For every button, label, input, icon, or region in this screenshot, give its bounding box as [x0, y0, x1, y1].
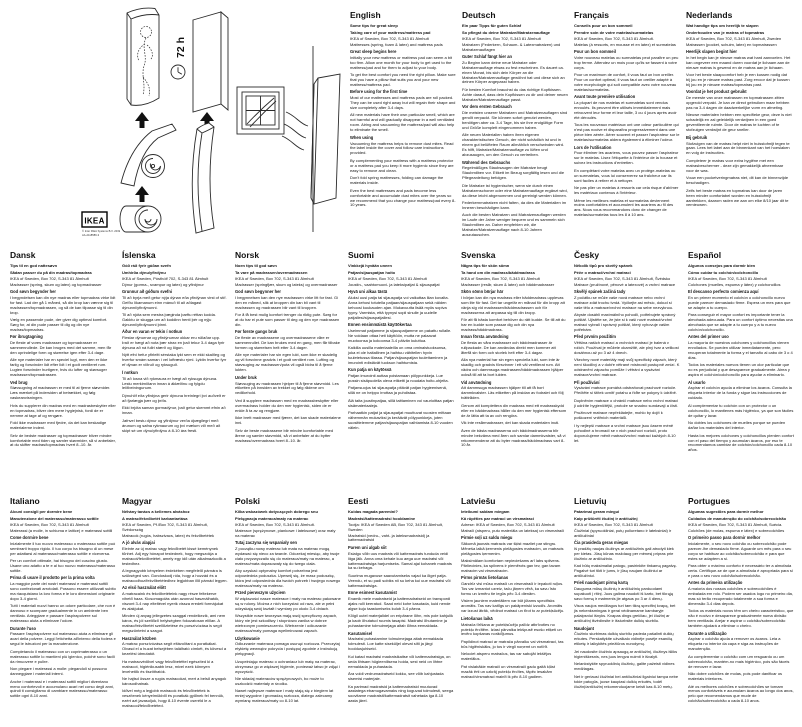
section-paragraph: Maksimālam komfortam nepieciešams arī la… [461, 559, 567, 574]
section-paragraph: Inizialmente il tuo nuovo materasso o ma… [10, 542, 116, 557]
document-number: AA-2118586-3 [82, 233, 100, 237]
section-paragraph: Non piegare i materassi a molle: piegand… [10, 667, 116, 677]
section-paragraph: Vik inte resårmadrasser, det kan skada m… [461, 421, 567, 426]
care-sections: Come dormire beneInizialmente il tuo nuo… [10, 536, 116, 699]
care-sections: God søvn begynder herI begyndelsen kan d… [10, 290, 116, 448]
section-paragraph: Enamik meie madratseid ja kattemadratsei… [348, 597, 454, 612]
section-paragraph: Matrača tīrīšana ar putekļsūcēju palīdz … [461, 623, 567, 638]
product-types: Madrasser (springfjær, skum og lateks) o… [235, 283, 341, 288]
sleep-tips-tagline: Vinkkejä hyvään uneen [348, 264, 454, 269]
section-paragraph: Nie składaj materaców sprężynowych, bo m… [235, 677, 341, 687]
section-paragraph: Odkurzanie materaca pomaga usunąć roztoc… [235, 642, 341, 657]
care-sections: Skön sömn börjar härI början kan din nya… [461, 290, 567, 448]
product-types: Colchones (muelles, espuma y látex) y co… [688, 283, 794, 288]
language-title: Eesti [348, 496, 454, 506]
section-paragraph: Madratsi puhastamine tolmuimejaga aitab … [348, 637, 454, 652]
language-title: Svenska [461, 250, 567, 260]
section-paragraph: Även de bästa madrasserna och bäddmadras… [461, 429, 567, 449]
section-paragraph: Nýtt efni hefur yfirleitt sérstaka lykt … [122, 353, 228, 368]
section-paragraph: Suurima mugavuse saavutamiseks vajad ka … [348, 574, 454, 589]
language-section: Dansk Tips til en god nattesøvn Sådan pa… [10, 250, 116, 451]
section-paragraph: För att få bästa komfort behöver du rätt… [461, 318, 567, 333]
arrow-up-icon [135, 112, 149, 128]
care-sections: Guter Schlaf fängt hier anZu Beginn kann… [462, 55, 568, 238]
sleep-tips-tagline: Ein paar Tipps für guten Schlaf [462, 24, 568, 29]
section-paragraph: Genom att komplettera din madrass med et… [461, 404, 567, 419]
language-section: Portugues Algumas sugestões para dormir … [688, 496, 794, 707]
sleep-tips-tagline: Ieteikumi saldam miegam [461, 510, 567, 515]
section-paragraph: La maggior parte dei nostri materassi e … [10, 582, 116, 602]
section-paragraph: Vouw een pocketveringmatras niet, dit ka… [686, 176, 792, 186]
section-heading: When using [350, 136, 456, 141]
section-paragraph: Iš pradžių naujas čiužinys ar antčiužini… [574, 547, 680, 562]
product-types: Madrasser (spring, skum og latex) og top… [10, 283, 116, 288]
sleep-tips-tagline: Alcuni consigli per dormire bene [10, 510, 116, 515]
section-paragraph: Al complementar tu colchón con un protec… [688, 404, 794, 419]
section-paragraph: Todos os materiais novos têm um cheiro c… [688, 609, 794, 629]
section-paragraph: La mayoría de nuestros colchones y colch… [688, 341, 794, 361]
section-heading: Bij gebruik [686, 136, 792, 141]
section-paragraph: Visiem jauniem materiāliem var būt jūtam… [461, 599, 567, 614]
care-sections: Hyvä uni alkaa tästäAluksi uusi patja ta… [348, 290, 454, 431]
care-sections: El descanso perfecto comienza aquíEn un … [688, 290, 794, 453]
section-paragraph: Para obter o máximo conforto é necessári… [688, 564, 794, 579]
air-flow-lines [282, 112, 308, 150]
language-title: Italiano [10, 496, 116, 506]
window-icon [237, 87, 284, 134]
section-paragraph: Useimmat patjamme ja sijauspatjamme on p… [348, 329, 454, 344]
section-paragraph: Hasta los mejores colchones y colchoncil… [688, 434, 794, 454]
manufacturer-address: IKEA of Sweden, Pf./Box 702, S-343 81 Äl… [122, 523, 228, 533]
section-paragraph: Visos naujos medžiagos turi tam tikrą sp… [574, 604, 680, 624]
section-paragraph: Für besten Komfort brauchst du das richt… [462, 88, 568, 103]
section-paragraph: I ty nejlepší matrace a vrchní matrace j… [574, 424, 680, 444]
section-paragraph: Completeer je matras voor extra hygiëne … [686, 159, 792, 174]
section-paragraph: Kui katad madratsi madratsikaitse või ka… [348, 655, 454, 670]
section-paragraph: La plupart de nos matelas et surmatelas … [574, 101, 680, 121]
section-paragraph: Votre nouveau matelas ou surmatelas peut… [574, 56, 680, 71]
language-section: Norsk Noen tips til god søvn Ta vare på … [235, 250, 341, 446]
sleep-tips-tagline: Algunos consejos para dormir bien [688, 264, 794, 269]
product-types: Matrace (pružinové, pěnové a latexové) a… [574, 283, 680, 288]
ikea-logo: IKEA [82, 212, 107, 227]
section-paragraph: Pružinové matrace nepřekládejte, mohlo b… [574, 411, 680, 421]
section-heading: Under bruk [235, 376, 341, 381]
language-section: Français Conseils pour un bon sommeil Pr… [574, 10, 680, 221]
section-paragraph: Fold ikke madrasser med fjedre, da det k… [10, 421, 116, 431]
mattress-care-illustration: 72 h [0, 0, 345, 245]
section-paragraph: Flestar dýnurnar og yfirdýnurnar okkar e… [122, 336, 228, 351]
section-paragraph: No dobles los colchones de muelles porqu… [688, 421, 794, 431]
section-paragraph: En un primer momento el colchón o colcho… [688, 296, 794, 311]
section-paragraph: Ha matracvédővel vagy fekvőbetéttel egés… [122, 660, 228, 675]
language-section: Česky Několik tipů pro skvělý spánek Péč… [574, 250, 680, 446]
section-paragraph: For å få best mulig komfort trenger du r… [235, 313, 341, 328]
language-title: English [350, 10, 456, 20]
rest-time-label: 72 h [175, 37, 187, 58]
language-title: Lietuvių [574, 496, 680, 506]
section-paragraph: Pour éliminer les acariens, vous pouvez … [574, 151, 680, 166]
section-paragraph: Pat vislabākie matrači un virsmatrači ga… [461, 665, 567, 680]
product-types: Čiužiniai (spyruokliniai, putų poliureta… [574, 529, 680, 539]
section-paragraph: Til að njóta sem mestra þæginda þarftu r… [122, 313, 228, 328]
section-paragraph: Hvis du supplerer din madras med en madr… [10, 404, 116, 419]
product-types: Matracok (rugós, habszivacs, latex) és f… [122, 534, 228, 539]
sleep-tips-tagline: Wat handige tips om heerlijk te slapen [686, 24, 792, 29]
section-paragraph: Federkernmatratzen nicht falten, da dies… [462, 201, 568, 211]
section-paragraph: Kad būtų maksimaliai patogu, pasirinkite… [574, 564, 680, 579]
section-paragraph: Most of our mattresses and mattress pads… [350, 96, 456, 111]
product-types: Materace (sprężynowe, piankowe i latekso… [235, 529, 341, 539]
section-paragraph: Dýnuhlíf eða yfirdýna gerir dýnuna hrein… [122, 394, 228, 404]
language-section: Svenska Några tips för skön sömn Ta hand… [461, 250, 567, 451]
section-paragraph: Att dammsuga madrassen hjälper till att … [461, 386, 567, 401]
section-paragraph: Aspirar o colchão ajuda a remover os áca… [688, 637, 794, 652]
section-paragraph: To get the best comfort you need the rig… [350, 73, 456, 88]
section-paragraph: In het begin kan je nieuwe matras wat ha… [686, 56, 792, 71]
product-types: Joustin-, vaahtomuovi- ja lateksipatjat … [348, 283, 454, 288]
care-sections: O primeiro passo para dormir melhorInici… [688, 536, 794, 704]
sleep-tips-tagline: Noen tips til god søvn [235, 264, 341, 269]
section-paragraph: Ne pas plier un matelas à ressorts car c… [574, 186, 680, 196]
care-sections: Pirmie soļi uz saldu mieguSākumā jaunais… [461, 536, 567, 680]
section-paragraph: Ära voldi vedrumadratseid kokku, see või… [348, 672, 454, 682]
section-paragraph: Čiužinio siurbimas dulkių siurbliu paded… [574, 632, 680, 647]
section-paragraph: Nelociet atsperu matračus, tas var saboj… [461, 652, 567, 662]
language-section: Suomi Vinkkejä hyvään uneen Patjan/sijau… [348, 250, 454, 434]
section-paragraph: Støvsugning af madrassen er med til at f… [10, 386, 116, 401]
section-paragraph: Til að byrja með getur nýja dýnan eða yf… [122, 296, 228, 311]
product-types: Dýnur (gorma-, svampur og latex) og yfir… [122, 283, 228, 288]
product-types: Materassi (a molle, in schiuma e lattice… [10, 529, 116, 534]
section-paragraph: All new materials have their own particu… [350, 113, 456, 133]
language-title: Íslenska [122, 250, 228, 260]
section-paragraph: Alle neuen Materialien haben ihren eigen… [462, 133, 568, 158]
section-paragraph: Z počátku se může vaše nová matrace nebo… [574, 296, 680, 311]
section-paragraph: A matracaink és fekvőbetéteink nagy rész… [122, 592, 228, 612]
section-paragraph: Stofzuigen van de matras helpt niet in h… [686, 142, 792, 157]
care-sections: A jó alvás alapjaiEleinte az új matrac v… [122, 541, 228, 709]
section-paragraph: Alla nya material har sin egen speciella… [461, 358, 567, 378]
section-paragraph: Minden új anyag jellegzetes szaggal rend… [122, 614, 228, 634]
care-sections: Heerlijk slapen begint hierIn het begin … [686, 50, 792, 208]
section-paragraph: Ka parimad madratsid ja kattemadratsid m… [348, 685, 454, 705]
section-paragraph: A legnagyobb kényelem érdekében megfelel… [122, 569, 228, 584]
copyright-line: © Inter IKEA Systems B.V. 2019 [82, 229, 121, 233]
section-paragraph: Todos los materiales nuevos tienen un ol… [688, 363, 794, 378]
section-paragraph: By complementing your mattress with a ma… [350, 159, 456, 174]
language-section: English Some tips for great sleep Taking… [350, 10, 456, 211]
leaning-mattress-illustration [311, 74, 340, 204]
language-section: Magyar Néhány tanács a kellemes alváshoz… [122, 496, 228, 712]
section-paragraph: Ekki brjóta saman gormadýnur, það getur … [122, 406, 228, 416]
sleep-tips-tagline: Kuidas magada paremini? [348, 510, 454, 515]
section-paragraph: Eleinte az új matrac vagy fekvőbetét kis… [122, 547, 228, 567]
section-paragraph: Ved å supplere madrassen med en madrassb… [235, 399, 341, 414]
sleep-tips-tagline: Some tips for great sleep [350, 24, 456, 29]
section-paragraph: I begynnelsen kan den nye madrassen virk… [235, 296, 341, 311]
section-paragraph: Completando il materasso con un coprimat… [10, 650, 116, 665]
section-paragraph: Para conseguir el mayor confort es impor… [688, 313, 794, 333]
section-paragraph: Nieuwe materialen hebben een specifieke … [686, 113, 792, 133]
section-paragraph: Passare l'aspirapolvere sul materasso ai… [10, 632, 116, 647]
language-title: Nederlands [686, 10, 792, 20]
sleep-tips-tagline: Conseils pour un bon sommeil [574, 24, 680, 29]
language-title: Česky [574, 250, 680, 260]
care-sections: Pour un bon sommeilVotre nouveau matelas… [574, 50, 680, 218]
section-paragraph: I begyndelsen kan din nye madras eller t… [10, 296, 116, 316]
care-sections: Skvělý spánek začíná tadyZ počátku se mů… [574, 290, 680, 443]
language-title: Français [574, 10, 680, 20]
language-section: Eesti Kuidas magada paremini? Madratsi/k… [348, 496, 454, 707]
section-paragraph: Papildinot matraci ar matrača pārvalku v… [461, 640, 567, 650]
product-types: Matratzen (Federkern, Schaum- & Latexmat… [462, 43, 568, 53]
language-title: Dansk [10, 250, 116, 260]
section-paragraph: Doplněním matrace o chránič matrace nebo… [574, 399, 680, 409]
section-paragraph: Støvsuging av madrassen hjelper til å fj… [235, 382, 341, 397]
unrolling-mattress-illustration [121, 124, 176, 186]
section-paragraph: Všechny nové materiály mají svůj specifi… [574, 358, 680, 378]
sleep-tips-tagline: Několik tipů pro skvělý spánek [574, 264, 680, 269]
language-title: Latviešu [461, 496, 567, 506]
language-title: Norsk [235, 250, 341, 260]
sleep-tips-tagline: Góð ráð fyrir góðan svefn [122, 264, 228, 269]
section-paragraph: Většina našich matrací a vrchních matrac… [574, 341, 680, 356]
language-title: Portugues [688, 496, 794, 506]
language-title: Polski [235, 496, 341, 506]
section-paragraph: Esialgu võib uus madrats või kattemadrat… [348, 552, 454, 572]
section-paragraph: Uzupełniając materac o ochraniacz lub ma… [235, 660, 341, 675]
care-sections: Great sleep begins hereInitially your ne… [350, 50, 456, 208]
section-heading: Lietošanas laikā [461, 617, 567, 622]
section-paragraph: Idővel még a legjobb matracok és fekvőbe… [122, 689, 228, 709]
section-paragraph: Anche i materassi e i materassi sottili … [10, 680, 116, 700]
flat-mattress-pad-illustration [193, 12, 228, 112]
section-paragraph: Jei naudosite čiužinio apsaugą ar antčiu… [574, 650, 680, 660]
section-paragraph: Até os melhores colchões e sobrecolchões… [688, 685, 794, 705]
section-paragraph: Nelankstykite spyruoklinių čiužinių, gal… [574, 662, 680, 672]
product-types: Colchões (de molas, espuma e látex) e so… [688, 529, 794, 534]
section-paragraph: Auch die besten Matratzen und Matratzena… [462, 213, 568, 238]
section-paragraph: Die meisten unserer Matratzen und Matrat… [462, 111, 568, 131]
sleep-tips-tagline: Néhány tanács a kellemes alváshoz [122, 510, 228, 515]
section-paragraph: Kõigil uutel materjalidel on eripärane l… [348, 614, 454, 629]
section-paragraph: Z początku nowy materac lub mata na mate… [235, 547, 341, 567]
care-sections: God søvn begynner herI begynnelsen kan d… [235, 290, 341, 443]
care-sections: Parem uni algab siitEsialgu võib uus mad… [348, 546, 454, 704]
section-paragraph: En complétant votre matelas avec un prot… [574, 169, 680, 184]
curved-mattress-pad-illustration [192, 123, 214, 233]
section-paragraph: Selv de beste madrassene blir mindre kom… [235, 429, 341, 444]
section-paragraph: Vacuuming the mattress helps to remove d… [350, 142, 456, 157]
assembly-illustrations: 72 h [0, 0, 345, 245]
section-paragraph: De meeste van onze matrassen en topmatra… [686, 96, 792, 111]
rolled-mattress-illustration [120, 206, 161, 232]
section-paragraph: Abyste dosáhli maximálního pohodlí, potř… [574, 313, 680, 333]
sleep-tips-tagline: Algumas sugestões para dormir melhor [688, 510, 794, 515]
section-paragraph: Patjansuojus tai sijauspatja pitävät pat… [348, 386, 454, 396]
product-types: Madrasser (resår, skum & latex) och bädd… [461, 283, 567, 288]
section-heading: Í notkun [122, 371, 228, 376]
section-paragraph: W większości nasze materace i maty na ma… [235, 597, 341, 612]
section-paragraph: Til að losna við rykmaura er hægt að ryk… [122, 377, 228, 392]
section-paragraph: Dauguma mūsų čiužinių ir antčiužinių par… [574, 587, 680, 602]
language-section: Italiano Alcuni consigli per dormire ben… [10, 496, 116, 702]
care-sections: Čia prasideda geras miegasIš pradžių nau… [574, 541, 680, 690]
language-section: Polski Kilka wskazówek dotyczących dobre… [235, 496, 341, 707]
section-paragraph: Sākumā jaunais matracis var šķist mazlie… [461, 542, 567, 557]
sleep-tips-tagline: Patarimai geram miegui [574, 510, 680, 515]
sleep-tips-tagline: Kilka wskazówek dotyczących dobrego snu [235, 510, 341, 515]
section-paragraph: Nawet najlepsze materace i maty stają si… [235, 689, 341, 704]
language-section: Íslenska Góð ráð fyrir góðan svefn Umhir… [122, 250, 228, 436]
section-paragraph: De fleste av madrassene og overmadrassen… [235, 336, 341, 351]
rest-time-indicator: 72 h [171, 37, 187, 79]
section-paragraph: Parhaatkin patjat ja sijauspatjat muuttu… [348, 411, 454, 431]
section-paragraph: Alle nye materialer har sin egen lukt, s… [235, 353, 341, 373]
language-section: Español Algunos consejos para dormir bie… [688, 250, 794, 456]
product-types: Matelas (à ressorts, en mousse et en lat… [574, 43, 680, 48]
section-paragraph: Initially your new mattress or mattress … [350, 56, 456, 71]
section-paragraph: Ikke brett madrasser med fjærer, det kan… [235, 416, 341, 426]
care-sections: Grunnur að góðum svefniTil að byrja með … [122, 290, 228, 434]
section-paragraph: Même les meilleurs matelas et surmatelas… [574, 199, 680, 219]
section-paragraph: Even the best mattresses and pads become… [350, 189, 456, 209]
product-types: Matrassen (pocket, schuim, latex) en top… [686, 43, 792, 48]
section-paragraph: Selv de bedste madrasser og topmadrasser… [10, 434, 116, 449]
language-title: Español [688, 250, 794, 260]
language-section: Latviešu Ieteikumi saldam miegam Kā rūpē… [461, 496, 567, 682]
language-section: Nederlands Wat handige tips om heerlijk … [686, 10, 792, 211]
section-paragraph: Net ir geriausi čiužiniai bei antčiužini… [574, 675, 680, 690]
manufacturer-address: Tootja: IKEA of Sweden AB, Box 702, 343 … [348, 523, 454, 533]
product-types: Matrači (atsperu, putu materiāla un late… [461, 529, 567, 534]
language-title: Suomi [348, 250, 454, 260]
product-types: Mattresses (spring, foam & latex) and ma… [350, 43, 456, 48]
mattress-with-sleeper-illustration [127, 8, 159, 105]
care-sections: Tutaj zaczyna się wspaniały senZ początk… [235, 541, 341, 704]
section-paragraph: Alle nye materialer har en speciel lugt,… [10, 358, 116, 378]
language-section: Lietuvių Patarimai geram miegui Kaip pri… [574, 496, 680, 692]
section-paragraph: Ao complementar o colchão com um resguar… [688, 655, 794, 670]
section-paragraph: Gandrīz visi mūsu matrači un virsmatrači… [461, 582, 567, 597]
product-types: Madratsid (vedru-, vaht- ja lateksmadrat… [348, 534, 454, 544]
section-paragraph: I början kan din nya madrass eller bäddm… [461, 296, 567, 316]
section-paragraph: Wszystkie nowe tworzywa mają swój specyf… [235, 614, 341, 634]
language-section: Deutsch Ein paar Tipps für guten Schlaf … [462, 10, 568, 241]
section-paragraph: Jafnvel bestu dýnur og yfirdýnur verða ó… [122, 419, 228, 434]
section-paragraph: Per un comfort ottimale, hai bisogno del… [10, 559, 116, 574]
section-paragraph: Tutti i materiali nuovi hanno un odore p… [10, 604, 116, 624]
section-paragraph: Inicialmente, o seu novo colchão ou sobr… [688, 542, 794, 562]
ikea-logo-text: IKEA [84, 216, 104, 225]
section-paragraph: Don't fold spring mattresses, folding ca… [350, 176, 456, 186]
section-paragraph: Aby uzyskać optymalny komfort potrzebna … [235, 569, 341, 589]
section-paragraph: Tous les nouveaux matériaux ont une odeu… [574, 123, 680, 143]
section-paragraph: De flesta av våra madrasser och bäddmadr… [461, 341, 567, 356]
section-paragraph: Älä taita joustinpatjaa, sillä taittamin… [348, 399, 454, 409]
section-paragraph: Die Matratze ist hygienischer, wenn sie … [462, 184, 568, 199]
section-paragraph: Pour un maximum de confort, il vous faut… [574, 73, 680, 93]
section-paragraph: Vælg en passende pude, der giver dig opt… [10, 318, 116, 333]
sleep-tips-tagline: Tips til en god nattesøvn [10, 264, 116, 269]
section-paragraph: Ne hajtsd össze a rugós matracokat, mert… [122, 677, 228, 687]
section-paragraph: Zu Beginn kann deine neue Matratze oder … [462, 61, 568, 86]
section-paragraph: Aluksi uusi patja tai sijauspatja voi va… [348, 296, 454, 321]
section-paragraph: Vysávání matrace pomáhá odstraňovat prac… [574, 386, 680, 396]
section-paragraph: Não dobre colchões de molas, pois pode d… [688, 672, 794, 682]
section-paragraph: A matrac porszívózása segít eltávolítani… [122, 642, 228, 657]
arrow-up-icon [135, 186, 149, 202]
language-title: Deutsch [462, 10, 568, 20]
section-paragraph: Regelmäßiges Staubsaugen der Matratze be… [462, 166, 568, 181]
section-paragraph: Kaikilla uusilla materiaaleilla on oma o… [348, 346, 454, 366]
section-paragraph: A maioria dos nossos colchões e sobrecol… [688, 587, 794, 607]
section-paragraph: De fleste af vores madrasser og topmadra… [10, 341, 116, 356]
sleep-tips-tagline: Några tips för skön sömn [461, 264, 567, 269]
section-paragraph: Aspirar el colchón ayuda a eliminar los … [688, 386, 794, 401]
section-paragraph: Zelfs het beste matras en topmatras kan … [686, 189, 792, 209]
section-paragraph: Patjan imurointi auttaa poistamaan pölyp… [348, 374, 454, 384]
section-paragraph: Voor het beste slaapcomfort heb je een k… [686, 73, 792, 88]
language-title: Magyar [122, 496, 228, 506]
